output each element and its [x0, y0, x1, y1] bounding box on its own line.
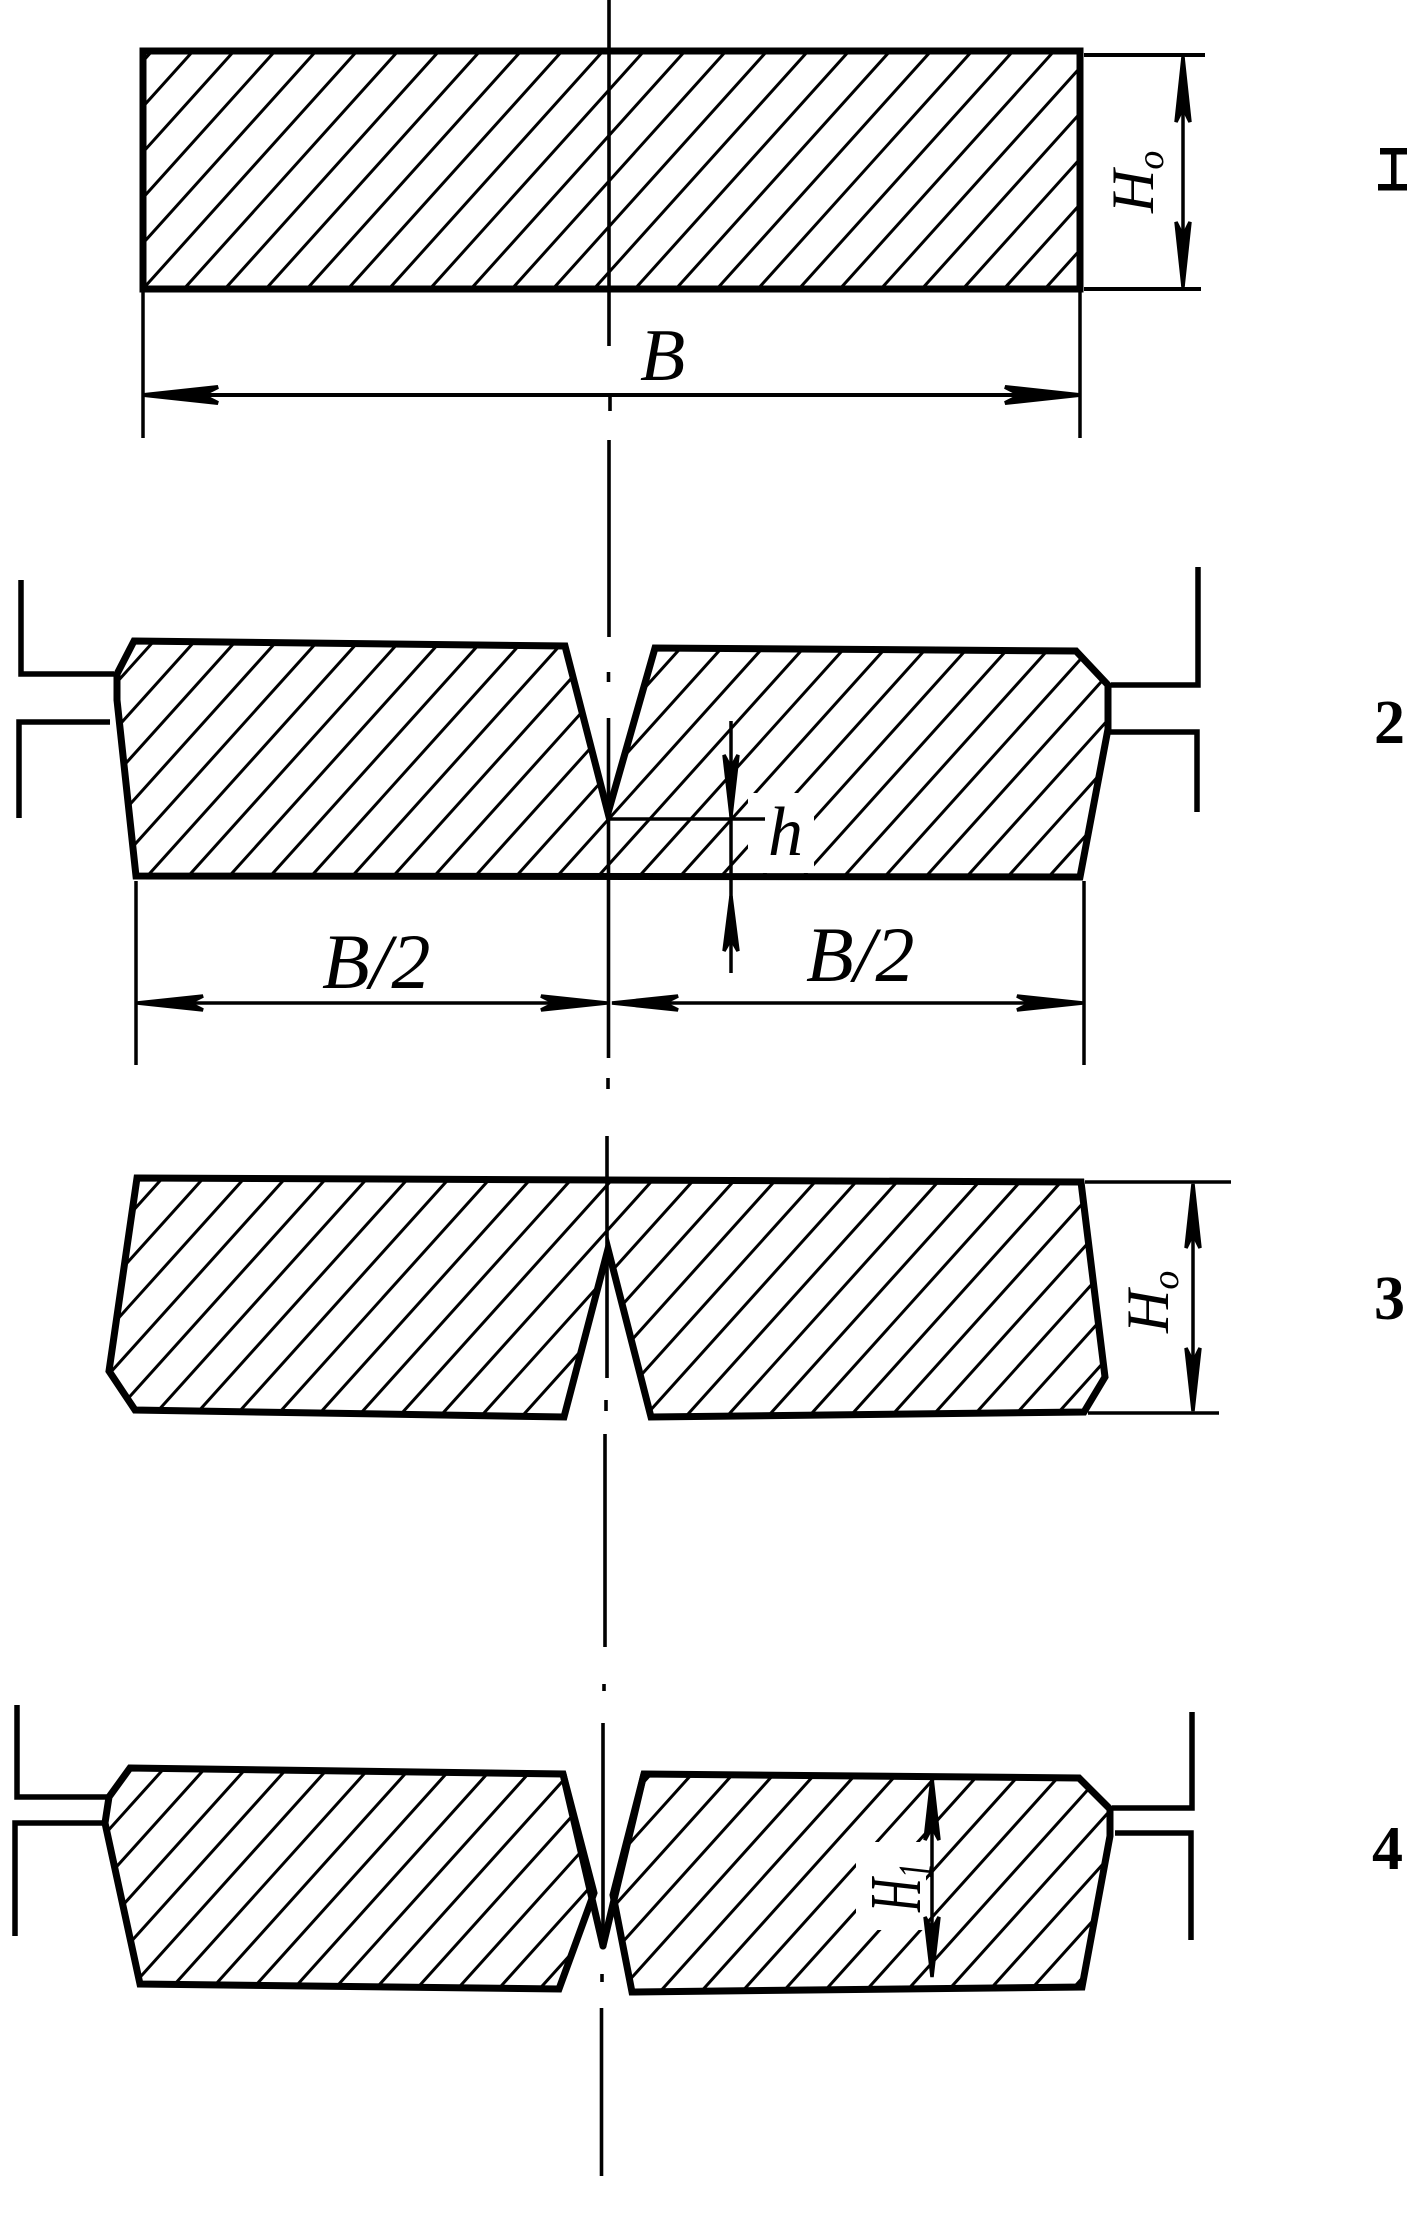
svg-text:B: B	[640, 315, 685, 397]
svg-text:h: h	[768, 794, 803, 871]
svg-text:2: 2	[1374, 689, 1405, 757]
svg-text:B/2: B/2	[806, 911, 914, 998]
svg-text:4: 4	[1372, 1815, 1403, 1883]
svg-text:B/2: B/2	[322, 918, 430, 1005]
svg-text:3: 3	[1374, 1265, 1405, 1333]
